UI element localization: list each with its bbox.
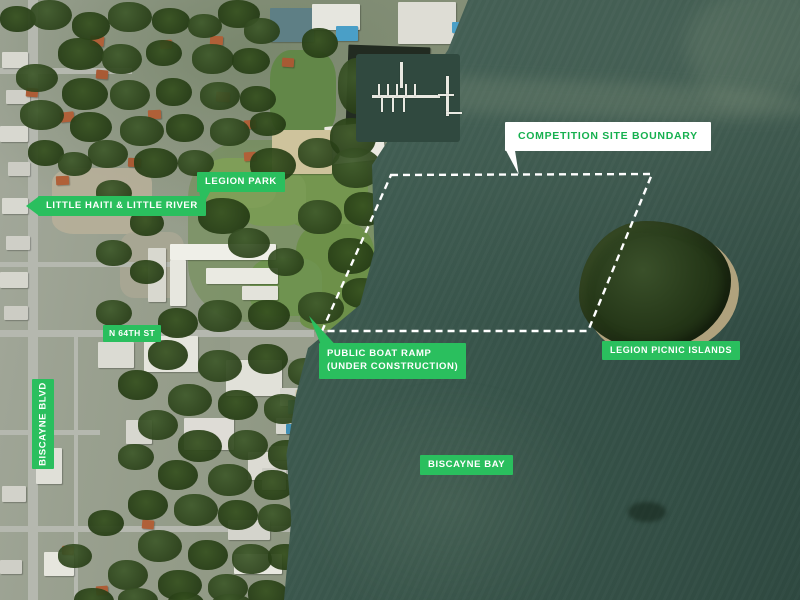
satellite-map: COMPETITION SITE BOUNDARY LEGION PARK LI… [0,0,800,600]
label-text: LEGION PICNIC ISLANDS [610,345,732,355]
map-decor [400,62,403,88]
map-decor [403,98,405,112]
marina-docks [0,0,800,600]
label-text: LEGION PARK [205,176,277,187]
arrow-left-pointer [26,197,38,215]
map-decor [381,98,383,112]
label-text: COMPETITION SITE BOUNDARY [518,130,698,142]
map-decor [405,84,407,96]
label-n-64th-st: N 64TH ST [103,325,161,342]
label-text: N 64TH ST [109,328,155,338]
map-decor [446,112,462,114]
map-decor [378,84,380,96]
label-text: PUBLIC BOAT RAMP [327,348,458,361]
label-competition-site-boundary: COMPETITION SITE BOUNDARY [505,122,711,151]
label-text: (UNDER CONSTRUCTION) [327,361,458,374]
map-decor [387,84,389,96]
label-text: LITTLE HAITI & LITTLE RIVER [46,200,198,211]
label-little-haiti-little-river: LITTLE HAITI & LITTLE RIVER [38,196,206,216]
label-text: BISCAYNE BAY [428,459,505,470]
label-legion-park: LEGION PARK [197,172,285,192]
map-decor [414,84,416,96]
map-decor [392,98,394,112]
map-decor [396,84,398,96]
label-text: BISCAYNE BLVD [38,379,48,469]
label-biscayne-bay: BISCAYNE BAY [420,455,513,475]
label-biscayne-blvd: BISCAYNE BLVD [32,379,54,469]
map-decor [446,76,449,116]
map-decor [438,94,454,96]
label-legion-picnic-islands: LEGION PICNIC ISLANDS [602,341,740,360]
label-public-boat-ramp: PUBLIC BOAT RAMP (UNDER CONSTRUCTION) [319,343,466,379]
